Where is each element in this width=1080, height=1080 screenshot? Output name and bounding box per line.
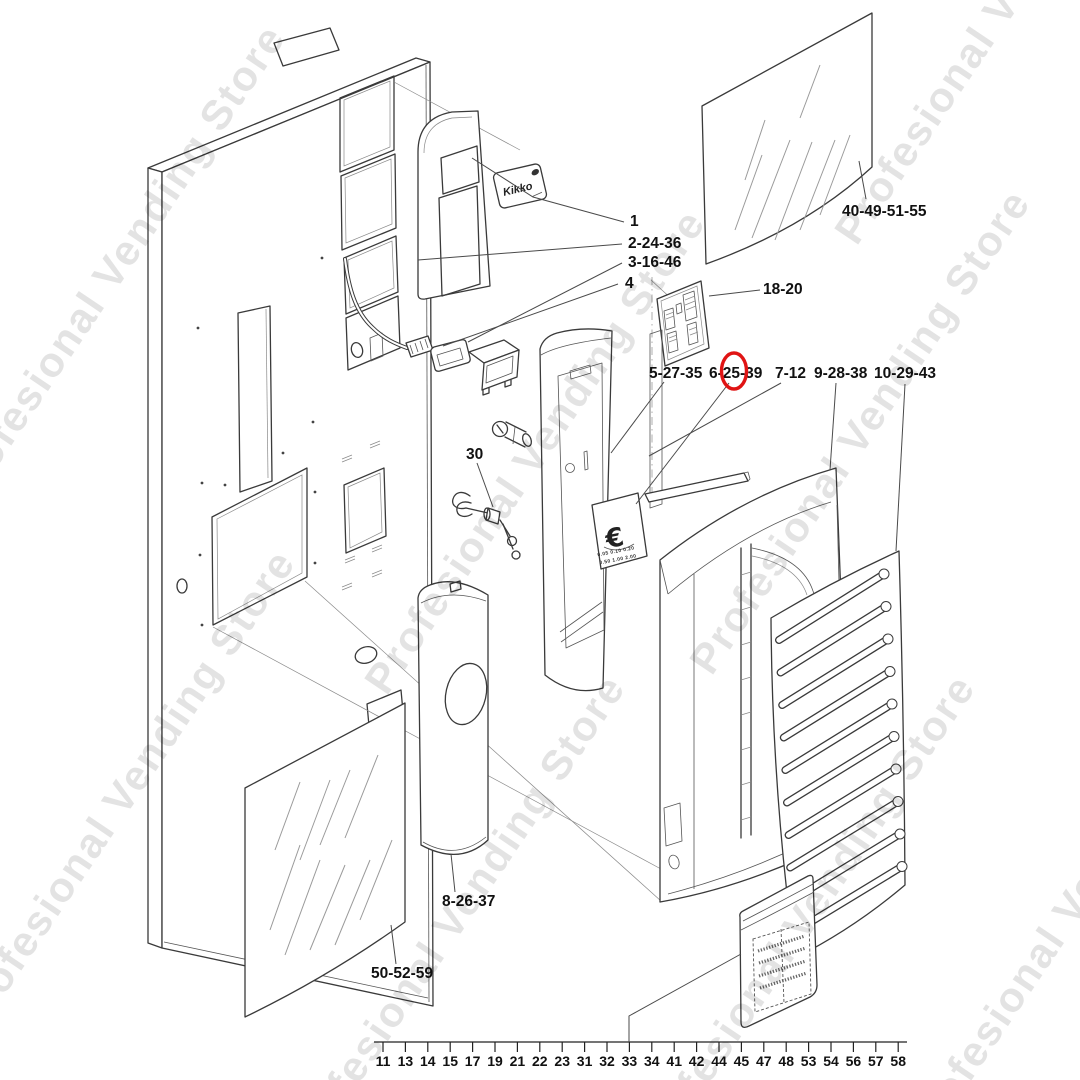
ruler-number: 21 xyxy=(510,1053,526,1069)
bottom-ruler: 1113141517192122233132333441424445474853… xyxy=(374,954,907,1069)
label-upper-group-b: 3-16-46 xyxy=(628,254,682,271)
upper-cover xyxy=(418,111,490,299)
label-column-2: 7-12 xyxy=(775,365,806,382)
grille-slot-hole xyxy=(891,764,901,774)
label-top-glass: 40-49-51-55 xyxy=(842,203,927,220)
ruler-number: 54 xyxy=(823,1053,839,1069)
ruler-number: 44 xyxy=(711,1053,727,1069)
label-upper-group-a: 2-24-36 xyxy=(628,235,682,252)
display-module xyxy=(469,340,519,395)
label-column-1: 6-25-39 xyxy=(709,365,763,382)
ruler-number: 45 xyxy=(734,1053,750,1069)
ruler-number: 23 xyxy=(554,1053,570,1069)
brand-badge: Kikko xyxy=(493,163,548,209)
spares-bag xyxy=(740,875,817,1027)
ruler-number: 34 xyxy=(644,1053,660,1069)
ruler-number: 11 xyxy=(376,1053,391,1069)
cup-column xyxy=(418,581,492,854)
lock-and-keys xyxy=(453,492,520,559)
label-column-4: 10-29-43 xyxy=(874,365,936,382)
ruler-number: 15 xyxy=(442,1053,458,1069)
ruler-number: 31 xyxy=(577,1053,593,1069)
glass-panel-top xyxy=(702,13,872,264)
ruler-number: 41 xyxy=(666,1053,682,1069)
euro-price-sticker: € 0.05 0.10 0.20 0.50 1.00 2.00 xyxy=(592,493,647,569)
ruler-number: 17 xyxy=(465,1053,481,1069)
ruler-number: 53 xyxy=(801,1053,817,1069)
label-column-3: 9-28-38 xyxy=(814,365,868,382)
grille-slot-hole xyxy=(889,732,899,742)
grille-slot-hole xyxy=(879,569,889,579)
label-bottom-glass: 50-52-59 xyxy=(371,965,433,982)
ruler-number: 33 xyxy=(622,1053,638,1069)
label-upper-cover: 1 xyxy=(630,213,639,230)
label-column-0: 5-27-35 xyxy=(649,365,703,382)
ruler-number: 57 xyxy=(868,1053,884,1069)
ruler-number: 14 xyxy=(420,1053,436,1069)
top-tab xyxy=(274,28,339,66)
bag-leader-line xyxy=(629,954,741,1042)
ruler-number: 47 xyxy=(756,1053,772,1069)
hinge-tab xyxy=(645,473,748,502)
label-lock-keys: 30 xyxy=(466,446,483,463)
ruler-number: 32 xyxy=(599,1053,615,1069)
grille-slot-hole xyxy=(885,667,895,677)
grille-slot-hole xyxy=(895,829,905,839)
diagram-canvas: Kikko xyxy=(0,0,1080,1080)
ruler-number: 22 xyxy=(532,1053,548,1069)
ruler-numbers: 1113141517192122233132333441424445474853… xyxy=(376,1042,907,1069)
ruler-number: 13 xyxy=(398,1053,414,1069)
grille-slot-hole xyxy=(881,602,891,612)
lock-cylinder xyxy=(493,422,533,448)
ruler-number: 56 xyxy=(846,1053,862,1069)
grille-slot-hole xyxy=(893,797,903,807)
label-cup-column: 8-26-37 xyxy=(442,893,495,910)
grille-slot-hole xyxy=(897,862,907,872)
ruler-number: 48 xyxy=(778,1053,794,1069)
grille-slot-hole xyxy=(883,634,893,644)
label-keypad: 18-20 xyxy=(763,281,803,298)
grille-slot-hole xyxy=(887,699,897,709)
ruler-number: 42 xyxy=(689,1053,705,1069)
keypad-panel xyxy=(657,281,709,366)
label-display: 4 xyxy=(625,275,634,292)
ruler-number: 19 xyxy=(487,1053,503,1069)
ruler-number: 58 xyxy=(890,1053,906,1069)
exploded-parts-diagram: Kikko xyxy=(0,0,1080,1080)
bezel-frame xyxy=(431,340,470,372)
